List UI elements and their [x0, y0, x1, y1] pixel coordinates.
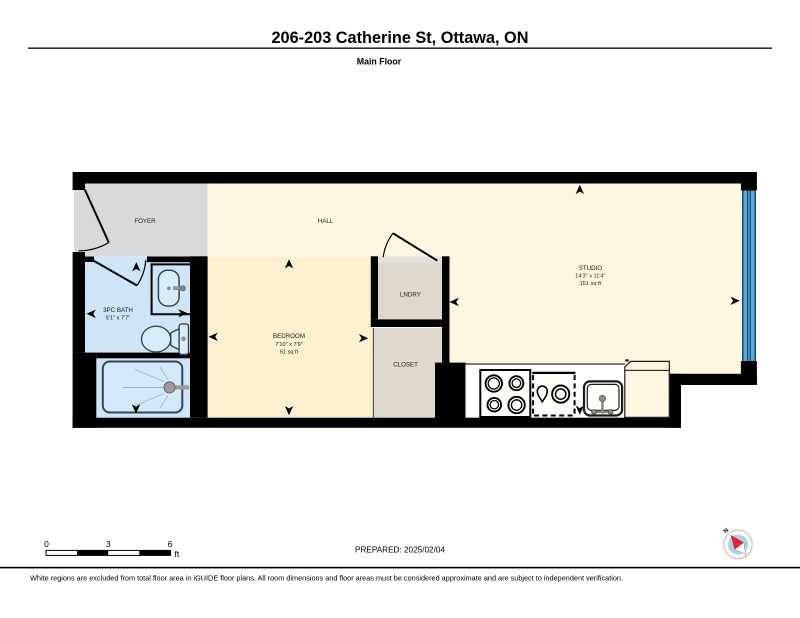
- svg-text:14'3" x 11'4": 14'3" x 11'4": [575, 274, 605, 280]
- svg-text:HALL: HALL: [318, 218, 334, 225]
- svg-text:7'10" x 7'9": 7'10" x 7'9": [275, 342, 303, 348]
- svg-text:3PC BATH: 3PC BATH: [103, 307, 133, 314]
- svg-text:151 sq ft: 151 sq ft: [580, 281, 602, 287]
- svg-text:0: 0: [44, 539, 49, 549]
- svg-text:White regions are excluded fro: White regions are excluded from total fl…: [30, 574, 623, 583]
- svg-text:3: 3: [106, 539, 111, 549]
- svg-text:FOYER: FOYER: [134, 218, 156, 225]
- svg-text:BEDROOM: BEDROOM: [273, 333, 305, 340]
- svg-text:206-203 Catherine St, Ottawa,: 206-203 Catherine St, Ottawa, ON: [272, 29, 529, 47]
- svg-text:6: 6: [168, 539, 173, 549]
- svg-text:PREPARED: 2025/02/04: PREPARED: 2025/02/04: [355, 545, 445, 554]
- svg-text:ft: ft: [175, 549, 180, 559]
- svg-text:5'1" x 7'7": 5'1" x 7'7": [106, 316, 130, 322]
- svg-text:LNDRY: LNDRY: [400, 292, 421, 299]
- svg-text:STUDIO: STUDIO: [579, 265, 603, 272]
- svg-text:Main Floor: Main Floor: [357, 57, 402, 67]
- svg-text:61 sq ft: 61 sq ft: [280, 350, 299, 356]
- svg-text:CLOSET: CLOSET: [393, 361, 418, 368]
